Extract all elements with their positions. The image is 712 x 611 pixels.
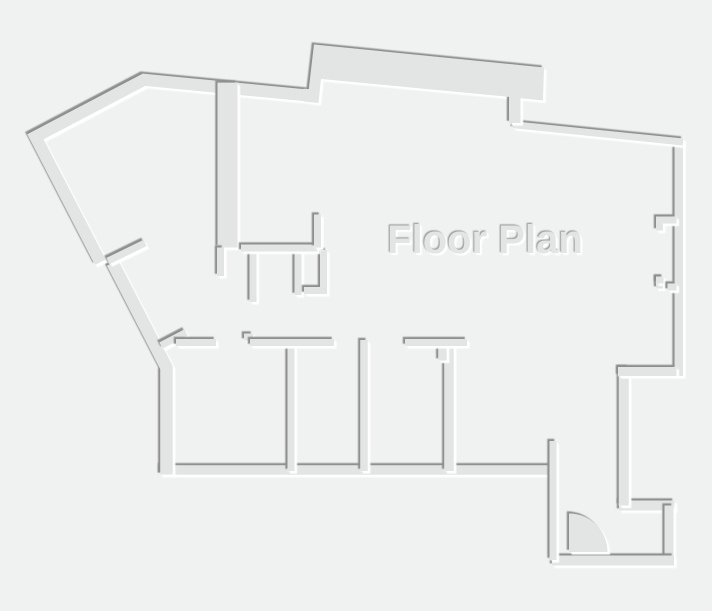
svg-text:Floor Plan: Floor Plan: [387, 218, 583, 262]
